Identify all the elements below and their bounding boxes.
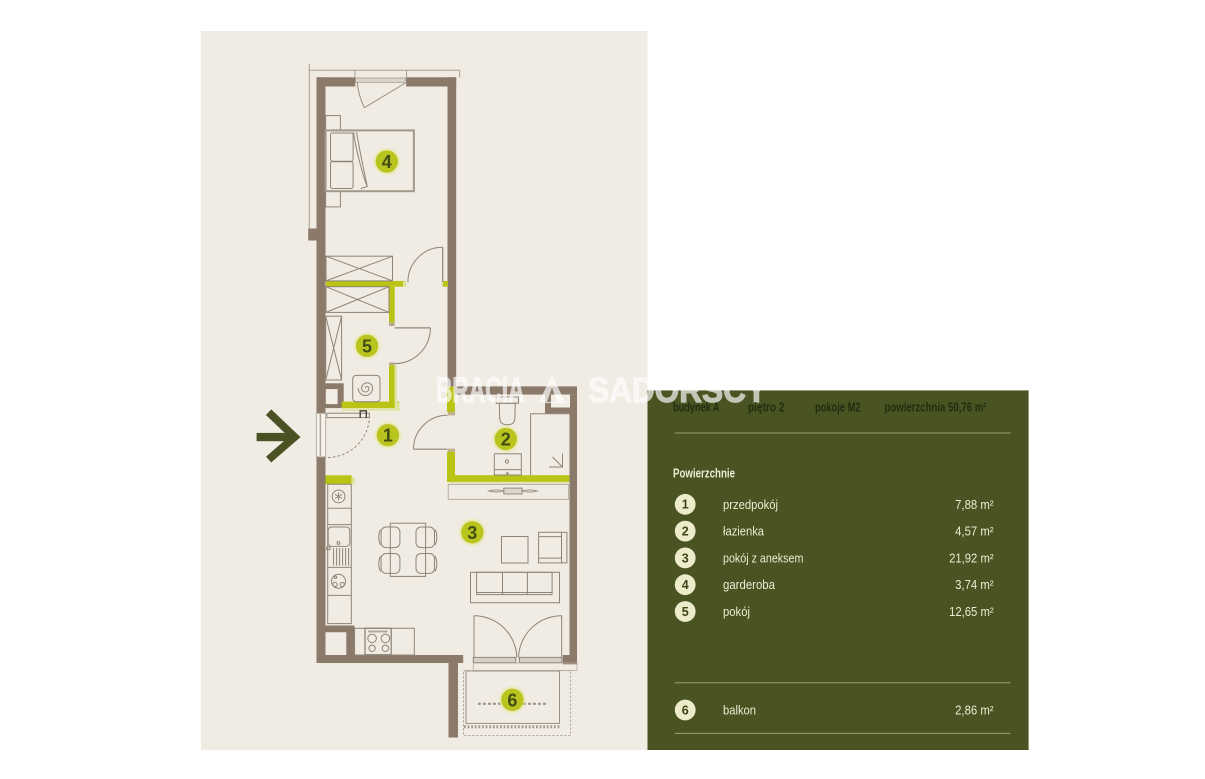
svg-text:5: 5: [682, 605, 689, 619]
svg-text:12,65 m²: 12,65 m²: [949, 604, 994, 619]
svg-text:łazienka: łazienka: [723, 524, 765, 539]
svg-text:przedpokój: przedpokój: [723, 497, 778, 512]
svg-text:piętro 2: piętro 2: [748, 400, 785, 415]
svg-text:3,74 m²: 3,74 m²: [955, 577, 994, 592]
svg-text:pokoje M2: pokoje M2: [815, 400, 861, 415]
svg-text:budynek A: budynek A: [673, 400, 720, 415]
svg-text:pokój: pokój: [723, 604, 750, 619]
svg-text:BRACIA: BRACIA: [436, 370, 525, 410]
svg-text:2,86 m²: 2,86 m²: [955, 703, 994, 718]
svg-text:1: 1: [682, 498, 689, 512]
svg-text:powierzchnia 50,76 m²: powierzchnia 50,76 m²: [885, 400, 987, 415]
svg-text:6: 6: [682, 703, 689, 717]
svg-text:1: 1: [383, 426, 393, 446]
svg-text:2: 2: [501, 430, 511, 450]
svg-text:3: 3: [467, 523, 477, 543]
svg-text:4: 4: [382, 152, 392, 172]
svg-text:pokój z aneksem: pokój z aneksem: [723, 550, 803, 565]
svg-text:balkon: balkon: [723, 703, 756, 718]
svg-text:garderoba: garderoba: [723, 577, 776, 592]
svg-text:7,88 m²: 7,88 m²: [955, 497, 994, 512]
svg-text:5: 5: [362, 336, 372, 356]
svg-text:21,92 m²: 21,92 m²: [949, 550, 994, 565]
svg-text:3: 3: [682, 551, 689, 565]
svg-text:2: 2: [682, 525, 689, 539]
svg-text:4,57 m²: 4,57 m²: [955, 524, 994, 539]
svg-text:6: 6: [507, 690, 517, 710]
svg-text:4: 4: [682, 578, 689, 592]
svg-text:Powierzchnie: Powierzchnie: [673, 466, 735, 481]
